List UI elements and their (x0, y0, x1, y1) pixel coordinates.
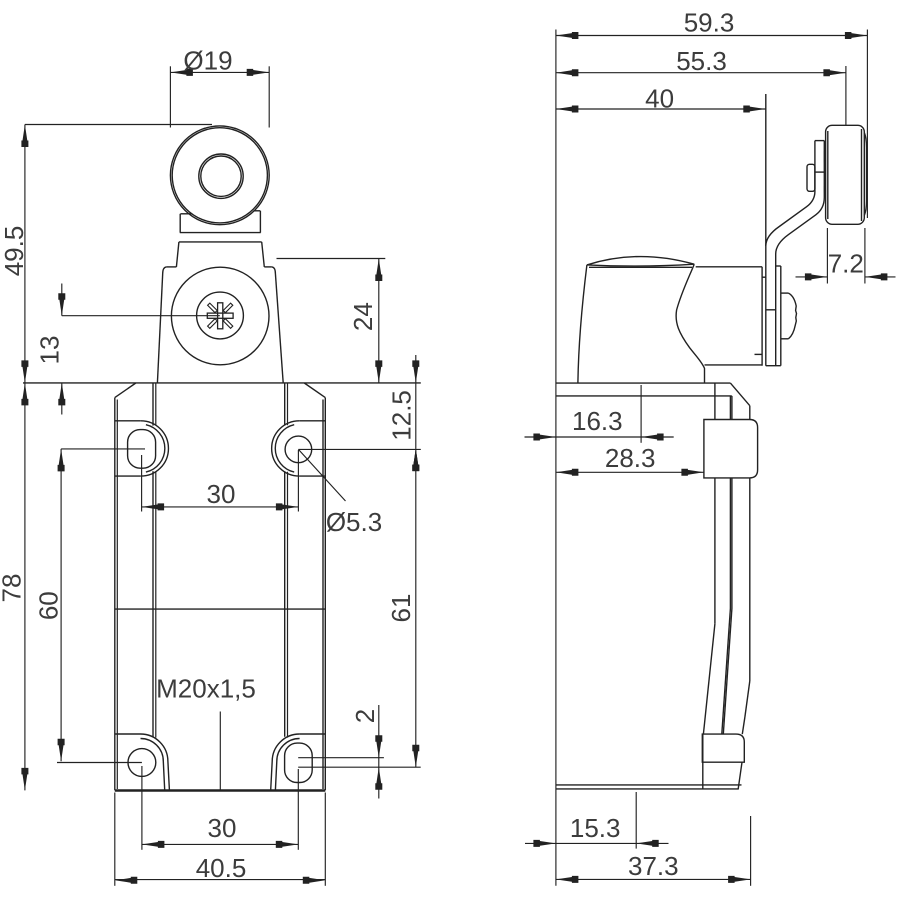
svg-text:2: 2 (350, 709, 380, 723)
svg-text:61: 61 (386, 594, 416, 623)
svg-text:Ø19: Ø19 (183, 45, 232, 75)
svg-text:60: 60 (34, 591, 64, 620)
svg-text:7.2: 7.2 (828, 248, 864, 278)
svg-text:Ø5.3: Ø5.3 (326, 507, 382, 537)
svg-text:40: 40 (645, 83, 674, 113)
svg-text:30: 30 (207, 479, 236, 509)
svg-text:15.3: 15.3 (570, 813, 621, 843)
svg-text:13: 13 (35, 336, 65, 365)
svg-text:24: 24 (348, 302, 378, 331)
svg-text:28.3: 28.3 (605, 443, 656, 473)
svg-text:78: 78 (0, 574, 27, 603)
svg-text:16.3: 16.3 (572, 406, 623, 436)
svg-text:49.5: 49.5 (0, 226, 29, 277)
svg-text:37.3: 37.3 (628, 851, 679, 881)
svg-text:30: 30 (208, 813, 237, 843)
svg-text:59.3: 59.3 (684, 7, 735, 37)
svg-text:M20x1,5: M20x1,5 (156, 674, 256, 704)
svg-text:40.5: 40.5 (196, 853, 247, 883)
svg-text:12.5: 12.5 (387, 390, 417, 441)
svg-text:55.3: 55.3 (676, 46, 727, 76)
